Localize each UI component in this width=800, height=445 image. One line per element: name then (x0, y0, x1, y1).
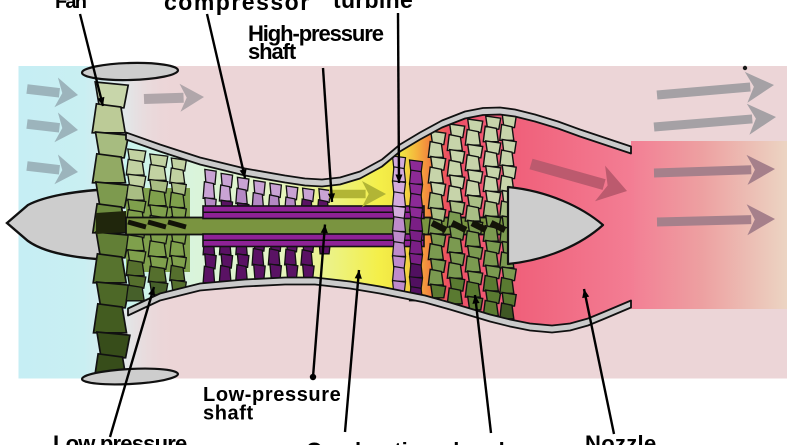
svg-text:Nozzle: Nozzle (585, 431, 656, 445)
svg-text:Combustion chamber: Combustion chamber (306, 438, 533, 445)
svg-text:Low pressure: Low pressure (53, 431, 187, 445)
svg-text:Low-pressureshaft: Low-pressureshaft (203, 384, 341, 425)
svg-text:compressor: compressor (164, 0, 311, 15)
svg-text:Fan: Fan (55, 0, 86, 13)
svg-text:High-pressureshaft: High-pressureshaft (248, 21, 384, 64)
svg-text:turbine: turbine (333, 0, 413, 13)
